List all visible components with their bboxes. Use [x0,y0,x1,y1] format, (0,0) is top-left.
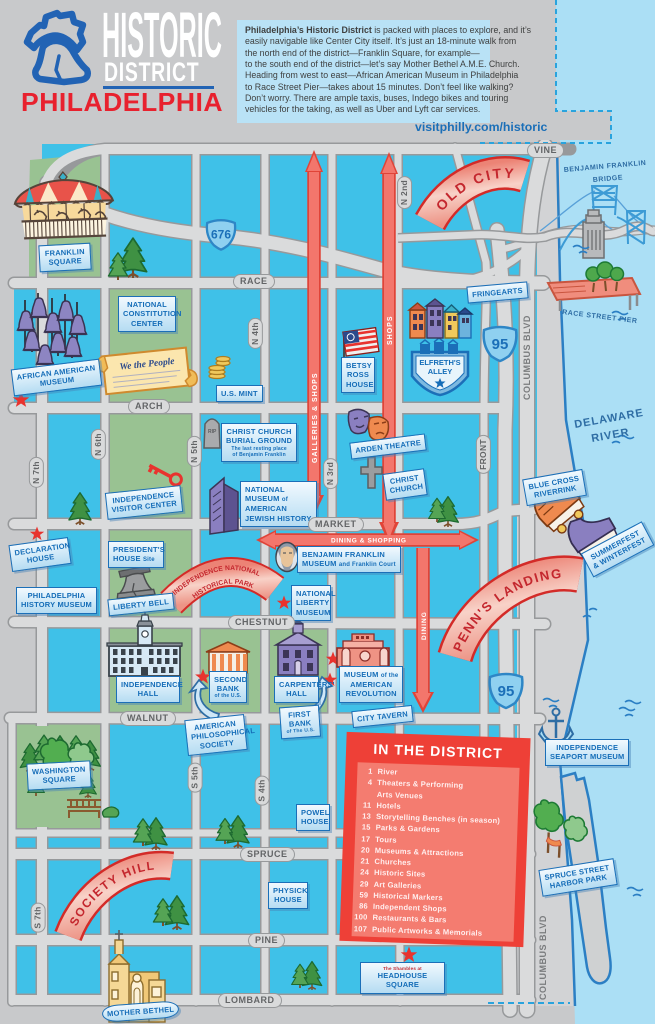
svg-text:COLUMBUS BLVD: COLUMBUS BLVD [538,915,548,1000]
svg-text:ALLEY: ALLEY [428,367,453,376]
svg-text:95: 95 [498,683,515,700]
svg-text:COLUMBUS BLVD: COLUMBUS BLVD [522,315,532,400]
svg-text:GALLERIES & SHOPS: GALLERIES & SHOPS [312,372,319,463]
svg-text:DINING: DINING [421,611,428,640]
svg-text:95: 95 [492,336,509,353]
svg-text:RIP: RIP [208,429,217,435]
svg-text:DINING & SHOPPING: DINING & SHOPPING [331,538,407,545]
svg-text:ELFRETH'S: ELFRETH'S [419,358,460,367]
svg-text:676: 676 [211,228,231,242]
svg-text:SHOPS: SHOPS [387,315,394,345]
